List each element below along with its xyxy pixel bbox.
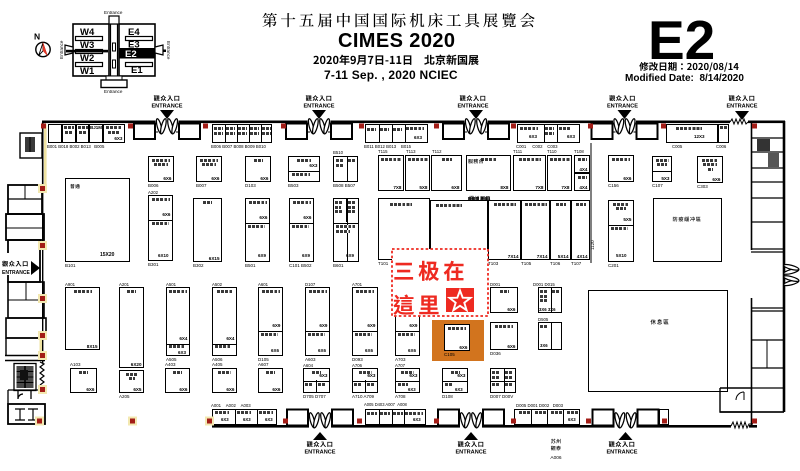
svg-text:E1: E1 (131, 65, 143, 76)
svg-text:Entrance: Entrance (59, 40, 64, 59)
svg-text:ENTRANCE: ENTRANCE (606, 450, 637, 456)
svg-text:1120: 1120 (590, 240, 595, 250)
svg-text:ENTRANCE: ENTRANCE (304, 450, 335, 456)
svg-text:N: N (34, 32, 40, 42)
svg-text:E4: E4 (128, 27, 140, 38)
svg-text:ENTRANCE: ENTRANCE (455, 450, 486, 456)
svg-text:Entrance: Entrance (166, 41, 171, 60)
svg-text:ENTRANCE: ENTRANCE (726, 104, 757, 110)
svg-text:W2: W2 (80, 53, 94, 64)
svg-text:Entrance: Entrance (104, 10, 123, 15)
svg-text:ENTRANCE: ENTRANCE (457, 104, 488, 110)
svg-text:W4: W4 (80, 27, 95, 38)
svg-text:Entrance: Entrance (104, 89, 123, 94)
svg-text:W3: W3 (80, 40, 94, 51)
svg-text:E2: E2 (125, 49, 137, 60)
svg-text:A006: A006 (550, 455, 562, 461)
svg-text:ENTRANCE: ENTRANCE (2, 270, 30, 276)
svg-text:ENTRANCE: ENTRANCE (151, 104, 182, 110)
svg-text:ENTRANCE: ENTRANCE (303, 104, 334, 110)
svg-text:ENTRANCE: ENTRANCE (607, 104, 638, 110)
svg-text:W1: W1 (80, 66, 95, 77)
